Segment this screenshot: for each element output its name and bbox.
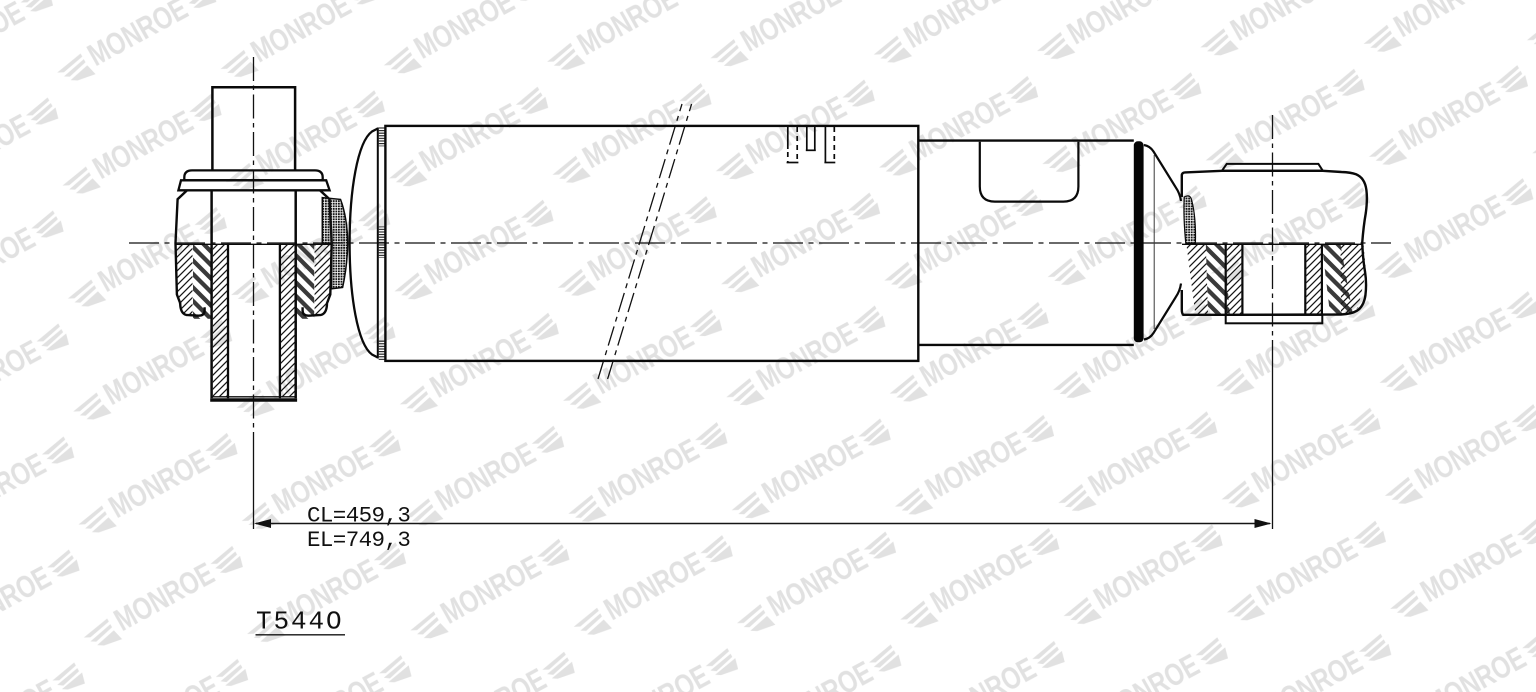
- svg-text:EL=749,3: EL=749,3: [307, 527, 410, 553]
- svg-text:T544O: T544O: [256, 607, 344, 637]
- svg-text:CL=459,3: CL=459,3: [307, 502, 410, 528]
